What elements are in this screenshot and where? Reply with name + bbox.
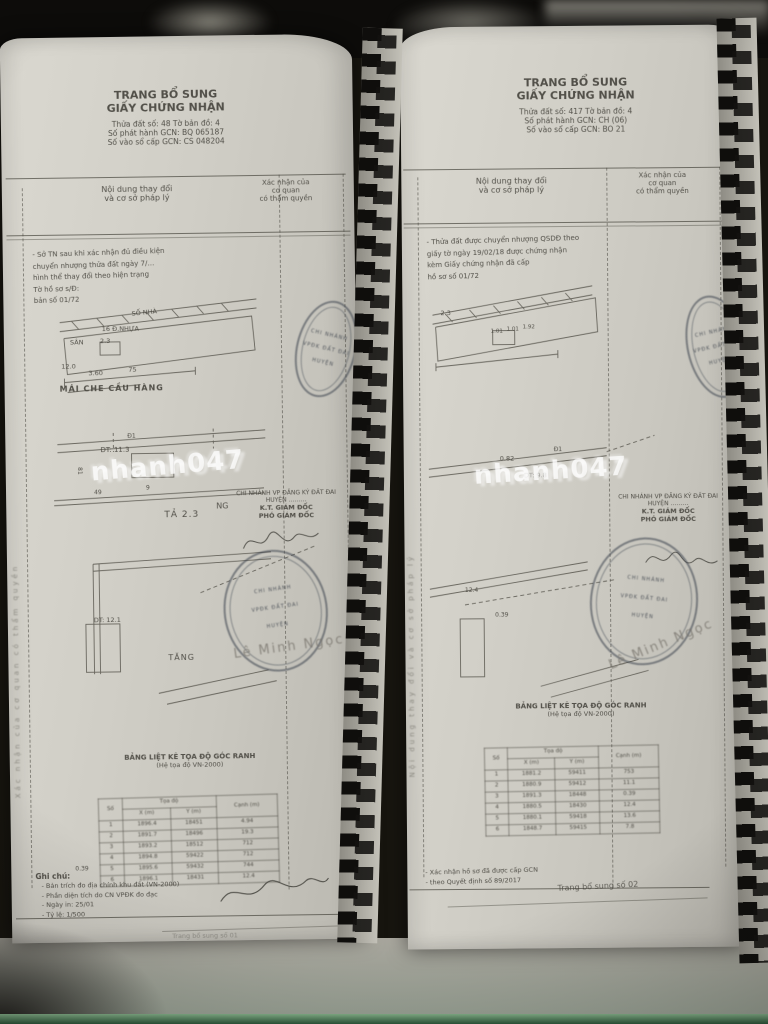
rule — [404, 221, 736, 225]
dim-2-3: 2.3 — [440, 309, 450, 317]
header-line5: Số vào sổ cấp GCN: BO 21 — [451, 124, 701, 135]
dim-49: 49 — [94, 489, 102, 496]
coordinate-table-title: BẢNG LIỆT KÊ TỌA ĐỘ GÓC RANH (Hệ tọa độ … — [496, 701, 666, 718]
column-header-right-l3: có thẩm quyền — [609, 187, 715, 196]
dim-1-01: 1.01 — [507, 326, 519, 332]
column-header-left-l2: và cơ sở pháp lý — [22, 192, 252, 204]
column-header-left-l2: và cơ sở pháp lý — [421, 185, 601, 196]
dim-2-3: 2.3 — [100, 337, 110, 345]
column-header-right-l3: có thẩm quyền — [234, 194, 338, 203]
label-dt2: DT: 12.1 — [94, 616, 121, 624]
coordinate-table: Số Tọa độ Cạnh (m) X (m) Y (m) 11881.259… — [484, 744, 661, 836]
document-page-right: Nội dung thay đổi và cơ sở pháp lý TRANG… — [400, 25, 744, 950]
label-san: SÂN — [70, 338, 84, 346]
officials-block: CHI NHÁNH VP ĐĂNG KÝ ĐẤT ĐAI HUYỆN ……… K… — [609, 493, 727, 524]
coordinate-table-title: BẢNG LIỆT KÊ TỌA ĐỘ GÓC RANH (Hệ tọa độ … — [110, 752, 270, 770]
label-dt1: DT: 11.3 — [100, 446, 129, 454]
document-page-left: Xác nhận của cơ quan có thẩm quyền TRANG… — [0, 34, 364, 944]
label-d1: Đ1 — [127, 433, 136, 440]
page-number: Trang bổ sung số 01 — [172, 931, 238, 940]
dim-9: 9 — [146, 484, 150, 491]
dim-0-39: 0.39 — [495, 612, 508, 619]
dim-12-4: 12.4 — [465, 587, 478, 594]
officials-block: CHI NHÁNH VP ĐĂNG KÝ ĐẤT ĐAI HUYỆN ……… K… — [218, 489, 354, 521]
dim-81: 81 — [76, 467, 83, 475]
dim-12-0: 12.0 — [61, 362, 76, 370]
page-header: TRANG BỔ SUNG GIẤY CHỨNG NHẬN Thửa đất s… — [30, 86, 301, 148]
dim-1-92: 1.92 — [523, 324, 535, 330]
column-header-right: Xác nhận của cơ quan có thẩm quyền — [234, 178, 338, 203]
column-header-right: Xác nhận của cơ quan có thẩm quyền — [609, 171, 715, 196]
dim-0-39: 0.39 — [75, 865, 88, 872]
label-tang: TĂNG — [168, 653, 195, 662]
column-header-left: Nội dung thay đổi và cơ sở pháp lý — [22, 183, 252, 204]
column-header-left: Nội dung thay đổi và cơ sở pháp lý — [421, 176, 601, 196]
dim-75: 75 — [128, 366, 136, 374]
rule — [448, 897, 708, 907]
photo-scene: Xác nhận của cơ quan có thẩm quyền TRANG… — [0, 0, 768, 1024]
shadow-corner — [0, 920, 170, 1024]
table-row: 61848.7594157.8 — [486, 822, 660, 836]
signature-scribble — [216, 870, 332, 914]
header-title-line2: GIẤY CHỨNG NHẬN — [451, 88, 701, 103]
table-subtitle: (Hệ tọa độ VN-2000) — [496, 709, 666, 718]
label-duong: 16 Đ.NHỰA — [102, 325, 139, 334]
green-table-edge — [0, 1014, 768, 1024]
label-mai-che: MÁI CHE CẦU HÀNG — [60, 383, 164, 393]
dim-1-01: 1.01 — [491, 329, 503, 335]
dim-3-60: 3.60 — [88, 369, 103, 377]
rule — [404, 225, 736, 229]
header-title-line2: GIẤY CHỨNG NHẬN — [31, 99, 301, 116]
label-d1: Đ1 — [554, 446, 563, 453]
notes-label: Ghi chú: — [35, 872, 70, 881]
label-ta-2-3: TẢ 2.3 — [164, 510, 199, 520]
notes-block: - Xác nhận hồ sơ đã được cấp GCN - theo … — [425, 861, 685, 888]
page-header: TRANG BỔ SUNG GIẤY CHỨNG NHẬN Thửa đất s… — [450, 75, 700, 135]
rule — [403, 167, 733, 171]
officials-line4: PHÓ GIÁM ĐỐC — [609, 515, 727, 524]
